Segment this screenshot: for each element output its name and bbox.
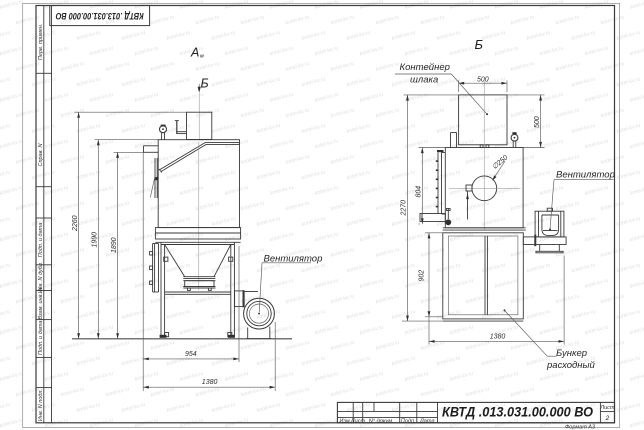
svg-text:1380: 1380: [202, 379, 218, 386]
svg-text:А: А: [190, 46, 199, 60]
svg-text:Подп.: Подп.: [401, 418, 416, 424]
svg-text:Формат А3: Формат А3: [565, 424, 596, 430]
svg-text:902: 902: [419, 270, 426, 282]
svg-text:Перв. примен.: Перв. примен.: [38, 24, 44, 61]
svg-text:Дата: Дата: [419, 418, 435, 424]
svg-text:расходный: расходный: [546, 360, 596, 371]
svg-text:Бункер: Бункер: [556, 348, 587, 359]
svg-text:Б: Б: [201, 77, 209, 91]
svg-text:шлака: шлака: [410, 74, 438, 85]
svg-text:Б: Б: [475, 37, 484, 52]
svg-text:804: 804: [416, 186, 423, 198]
svg-text:Инв. N подл.: Инв. N подл.: [38, 389, 44, 421]
svg-text:м: м: [200, 54, 204, 60]
svg-text:Подп. и дата: Подп. и дата: [38, 321, 44, 355]
svg-text:500: 500: [534, 116, 541, 128]
svg-text:2270: 2270: [401, 200, 408, 217]
svg-text:Взам. инв. N: Взам. инв. N: [38, 287, 44, 319]
svg-text:954: 954: [185, 351, 197, 358]
svg-text:Лист: Лист: [350, 418, 366, 424]
svg-text:Лист: Лист: [599, 405, 615, 411]
svg-text:2: 2: [605, 415, 610, 422]
svg-text:N° докум.: N° докум.: [369, 418, 394, 424]
svg-text:1990: 1990: [92, 232, 99, 248]
svg-text:Изм.: Изм.: [339, 418, 351, 424]
svg-text:500: 500: [477, 76, 489, 83]
svg-text:2260: 2260: [72, 215, 79, 232]
svg-text:1890: 1890: [111, 237, 118, 253]
svg-text:Контейнер: Контейнер: [400, 62, 450, 73]
svg-text:Подп. и дата: Подп. и дата: [38, 223, 44, 257]
svg-text:КВТД .013.031.00.000 ВО: КВТД .013.031.00.000 ВО: [56, 11, 144, 21]
svg-text:КВТД .013.031.00.000 ВО: КВТД .013.031.00.000 ВО: [442, 404, 593, 420]
svg-text:1380: 1380: [490, 334, 506, 341]
svg-text:Справ. N: Справ. N: [38, 143, 44, 166]
svg-text:Вентилятор: Вентилятор: [556, 170, 615, 181]
